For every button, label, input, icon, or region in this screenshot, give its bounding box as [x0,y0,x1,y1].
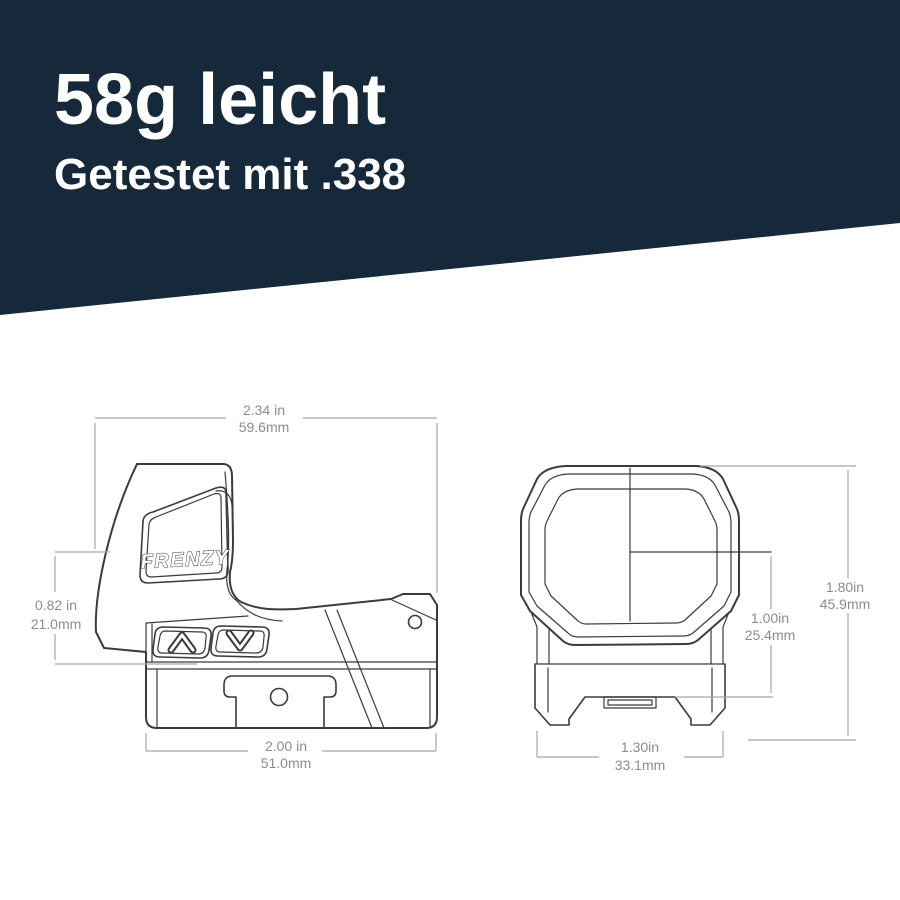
side-top-width-mm-label: 59.6mm [239,419,290,435]
front-axis-height-in-label: 1.00in [751,610,789,626]
side-front-height-mm-label: 21.0mm [31,616,82,632]
side-base-width-in-label: 2.00 in [265,738,307,754]
header-banner: 58g leicht Getestet mit .338 [0,0,900,315]
side-top-width-in-label: 2.34 in [243,402,285,418]
front-total-height-mm-label: 45.9mm [820,596,871,612]
side-view-outline [96,464,437,728]
side-front-height-in-label: 0.82 in [35,597,77,613]
headline: 58g leicht [54,60,386,140]
infographic-page: 58g leicht Getestet mit .338 FRENZY [0,0,900,900]
front-total-height-in-label: 1.80in [826,579,864,595]
rail-rib-outer [604,697,656,708]
front-rail-width-mm-label: 33.1mm [615,757,666,773]
subheadline: Getestet mit .338 [54,150,406,199]
front-view-drawing: 1.80in 45.9mm 1.00in 25.4mm 1.30in 33.1m… [521,466,870,773]
side-base-width-mm-label: 51.0mm [261,755,312,771]
front-axis-height-mm-label: 25.4mm [745,627,796,643]
frenzy-logo: FRENZY [140,547,230,574]
front-rail-outline [535,664,725,725]
front-rail-width-in-label: 1.30in [621,739,659,755]
side-view-drawing: FRENZY 2.34 in [31,402,437,771]
front-rail-width-dimension: 1.30in 33.1mm [537,731,723,773]
rail-rib-inner [608,700,652,705]
side-base-width-dimension: 2.00 in 51.0mm [146,733,436,771]
